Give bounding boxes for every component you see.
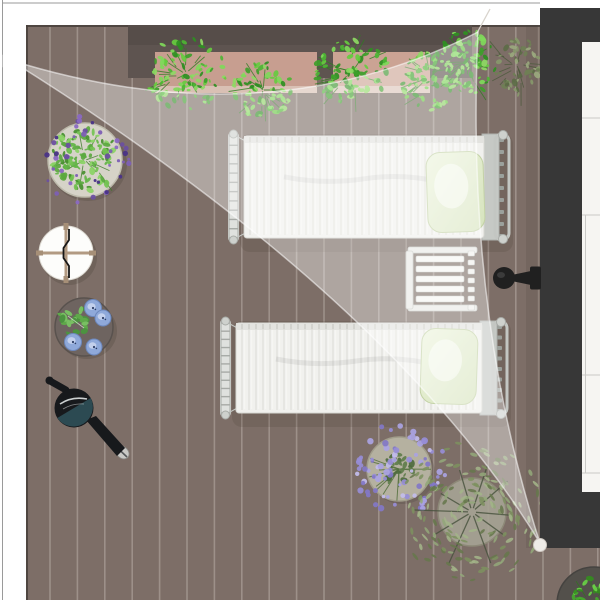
terrace-floor-plan bbox=[0, 0, 600, 600]
plan-svg bbox=[0, 0, 600, 600]
interior-floor bbox=[582, 42, 600, 492]
